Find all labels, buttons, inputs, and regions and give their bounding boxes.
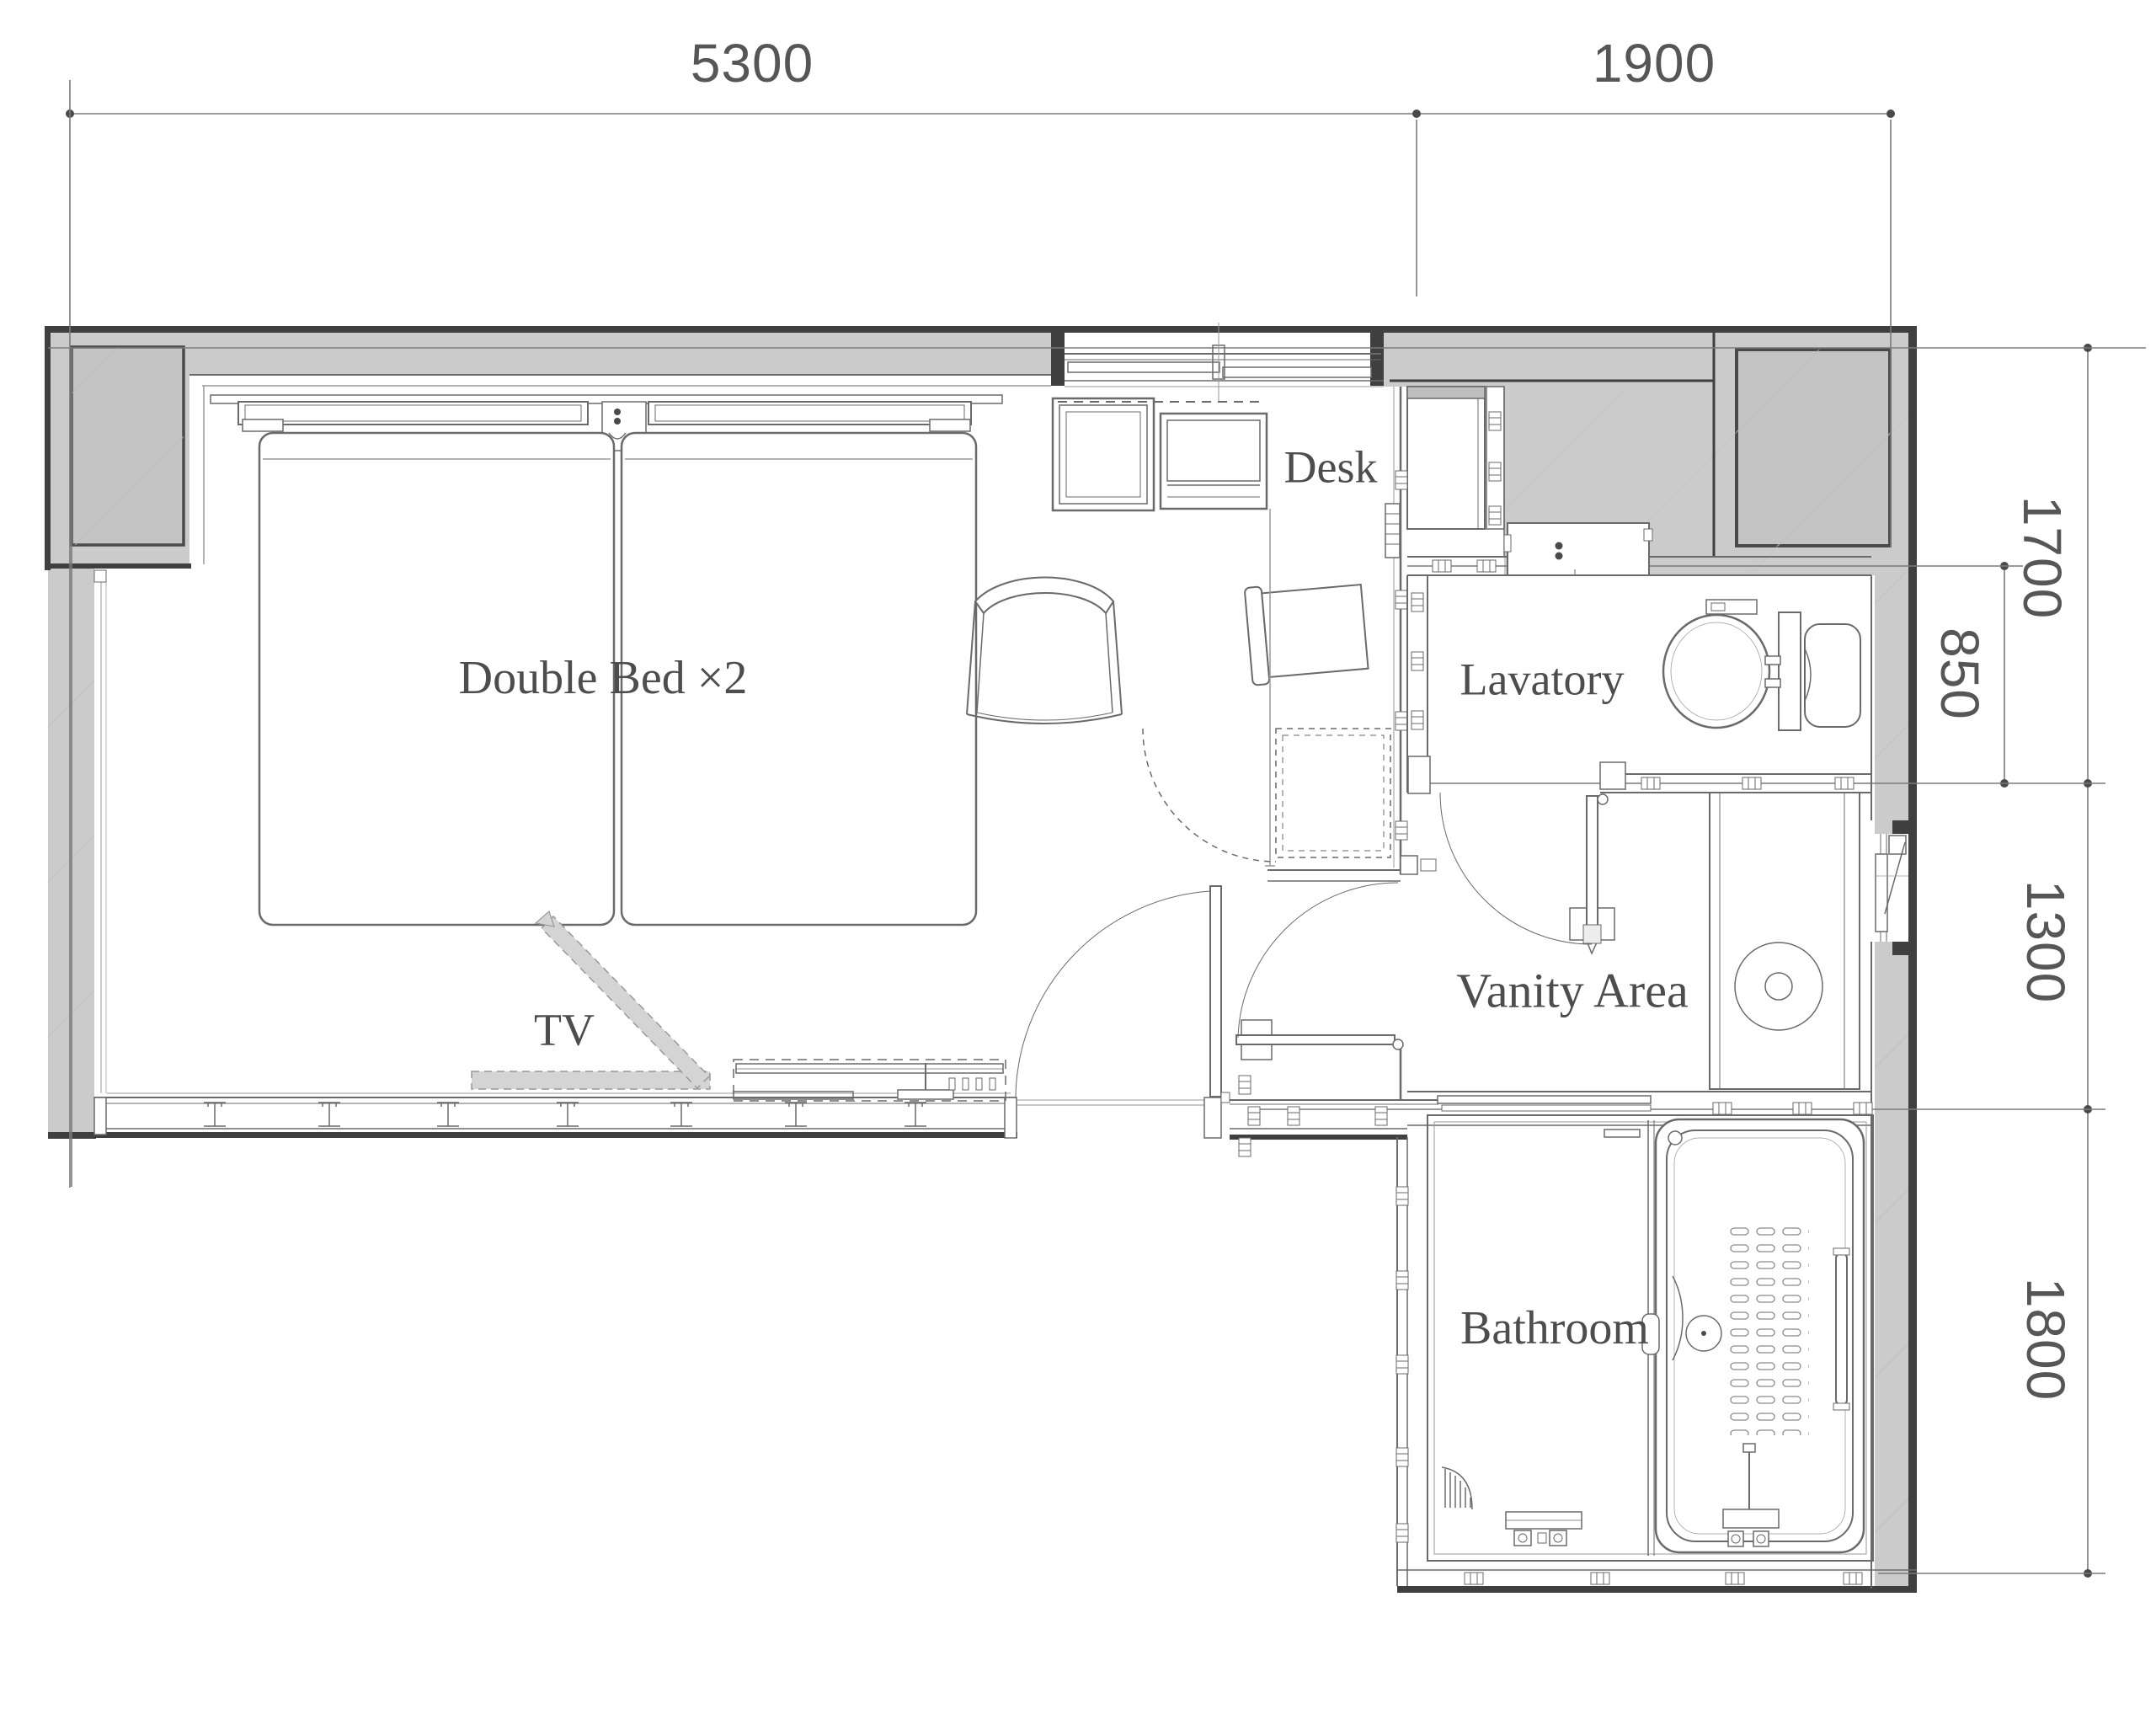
top-wall <box>48 330 1064 375</box>
closet <box>1407 387 1504 557</box>
bathtub <box>1656 1119 1864 1552</box>
service-counter <box>1504 523 1652 575</box>
reading-light <box>614 409 621 415</box>
tv-closed-position <box>472 1071 710 1089</box>
desk-label: Desk <box>1284 441 1378 492</box>
vanity-door-hinge <box>1393 1039 1403 1049</box>
floorplan-page: 5300 1900 1700 850 1300 1800 <box>0 0 2156 1725</box>
dim-top-1900: 1900 <box>1593 33 1716 93</box>
lavatory-label: Lavatory <box>1460 654 1625 704</box>
entry-door <box>1016 886 1230 1138</box>
tub-drain-slots <box>1728 1223 1809 1435</box>
dim-right-850: 850 <box>1929 628 1990 720</box>
entry-door-swing <box>1016 891 1210 1098</box>
tv-swivel-position <box>542 916 709 1088</box>
bedside-shelf-right <box>930 419 970 431</box>
corridor-walls <box>1230 856 1438 1156</box>
toilet-lid <box>1805 624 1860 727</box>
left-column-edge <box>45 328 51 570</box>
dim-right-1300: 1300 <box>2015 880 2076 1003</box>
toilet <box>1663 600 1860 730</box>
desk-chair <box>1245 578 1369 686</box>
luggage-bench <box>1143 729 1390 862</box>
reading-light <box>614 418 621 425</box>
grab-bar <box>1836 1253 1847 1405</box>
bedside-shelf-left <box>243 419 283 431</box>
floorplan-drawing: 5300 1900 1700 850 1300 1800 <box>0 0 2156 1725</box>
lavatory-door-leaf <box>1587 796 1598 941</box>
dim-top-5300: 5300 <box>691 33 814 93</box>
corner-drain <box>1442 1467 1472 1509</box>
dim-right-1700: 1700 <box>2012 496 2073 619</box>
wall-vent-panel <box>1385 504 1400 558</box>
top-wall-outer-edge <box>45 326 1917 333</box>
tv-console <box>734 1060 1006 1101</box>
desk-cabinets <box>1053 398 1275 866</box>
vanity-door-swing <box>1238 883 1398 1038</box>
toilet-tank <box>1779 612 1801 730</box>
window-jamb-left <box>1051 327 1065 386</box>
vanity-door-leaf <box>1236 1035 1395 1044</box>
hatch-texture <box>1875 575 1908 1592</box>
lavatory-door-hinge <box>1598 794 1608 804</box>
entry-door-leaf <box>1210 886 1221 1097</box>
vanity-area-label: Vanity Area <box>1456 963 1688 1017</box>
basin-drain <box>1765 973 1792 1000</box>
dim-right-1800: 1800 <box>2015 1278 2076 1401</box>
lavatory-door <box>1440 793 1614 953</box>
bathroom-sliding-door <box>1438 1096 1651 1137</box>
tv-label: TV <box>534 1004 595 1055</box>
vanity-counter <box>1710 793 1860 1089</box>
window-jamb-right <box>1370 327 1384 386</box>
window-wall-outer-edge <box>48 1132 1017 1138</box>
toilet-bowl <box>1663 615 1769 728</box>
right-wall-outer-edge <box>1908 326 1917 1592</box>
lavatory-door-swing <box>1440 793 1592 944</box>
window-wall <box>94 1093 1017 1138</box>
corridor-wall-outer-edge <box>1230 1135 1407 1140</box>
bathroom-outer-edge <box>1397 1586 1917 1593</box>
double-bed-label: Double Bed ×2 <box>459 652 748 704</box>
lounge-chair <box>967 578 1122 724</box>
shower-mixer <box>1506 1512 1582 1546</box>
wall-niche-cabinet <box>1875 820 1911 955</box>
vanity-door <box>1236 883 1403 1060</box>
desk-window <box>1065 323 1384 402</box>
bathroom-label: Bathroom <box>1460 1302 1649 1354</box>
hatch-texture <box>72 347 184 545</box>
